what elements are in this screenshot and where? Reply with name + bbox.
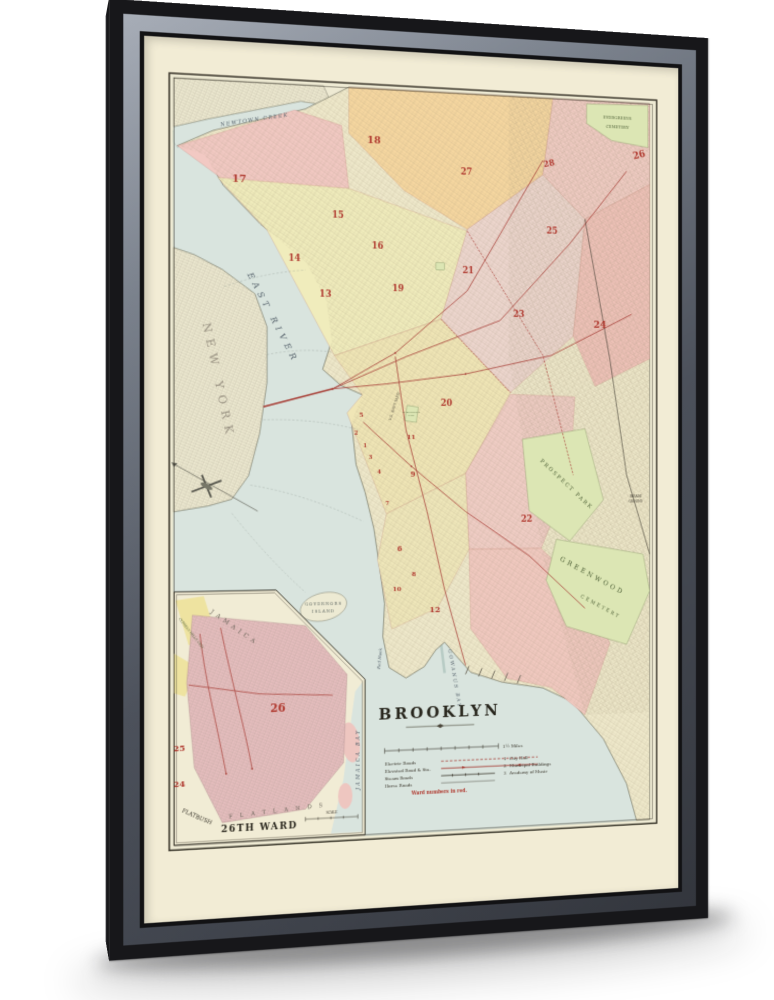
legend-key3-num: 3 (504, 770, 507, 775)
ward-18: 18 (367, 135, 381, 147)
inset-ward-25: 25 (173, 743, 185, 753)
ward-8: 8 (412, 571, 416, 578)
label-parade-ground-2: GROUND (629, 499, 643, 503)
legend-key2-num: 2 (504, 763, 507, 768)
ward-27: 27 (461, 166, 472, 177)
label-governors-island-2: ISLAND (312, 608, 335, 614)
framed-canvas: NEWTOWN CREEK EAST RIVER NEW YORK U.S. N… (109, 0, 708, 961)
scale-note: 1¼ Miles (503, 743, 523, 750)
ward-13: 13 (319, 288, 331, 299)
brooklyn-map: NEWTOWN CREEK EAST RIVER NEW YORK U.S. N… (166, 70, 660, 854)
float-gap: NEWTOWN CREEK EAST RIVER NEW YORK U.S. N… (140, 31, 682, 928)
label-governors-island-1: GOVERNORS (305, 600, 342, 606)
ward-7: 7 (385, 501, 389, 507)
ward-12: 12 (430, 605, 441, 615)
product-photo: NEWTOWN CREEK EAST RIVER NEW YORK U.S. N… (0, 0, 774, 1000)
ward-6: 6 (397, 545, 402, 554)
label-washington-park-2: PARK (408, 414, 415, 417)
ward-19: 19 (392, 282, 404, 293)
ward-21: 21 (462, 264, 473, 275)
ward-20: 20 (441, 398, 453, 409)
ward-11: 11 (407, 434, 416, 441)
ward-14: 14 (288, 252, 300, 263)
inset-label-jamaica-bay: JAMAICA BAY (355, 728, 361, 791)
ward-24: 24 (594, 319, 607, 331)
inset-ward-24: 24 (173, 779, 185, 789)
ward-23: 23 (513, 309, 525, 320)
ward-5: 5 (359, 411, 363, 418)
frame-inner-lip: NEWTOWN CREEK EAST RIVER NEW YORK U.S. N… (123, 14, 696, 946)
label-parade-ground-1: PARADE (630, 495, 642, 499)
ward-22: 22 (521, 513, 532, 524)
ward-1: 1 (363, 443, 367, 449)
ward-2: 2 (354, 431, 358, 437)
legend-key1-label: City Hall (510, 755, 529, 761)
ward-4: 4 (377, 469, 381, 475)
ward-17: 17 (232, 173, 246, 186)
ward-25: 25 (547, 225, 558, 236)
label-washington-park-1: WASHINGTON (402, 410, 420, 413)
frame-front: NEWTOWN CREEK EAST RIVER NEW YORK U.S. N… (109, 0, 708, 961)
ward-3: 3 (369, 455, 373, 461)
canvas-print: NEWTOWN CREEK EAST RIVER NEW YORK U.S. N… (144, 36, 678, 924)
ward-10: 10 (393, 585, 402, 593)
ward-15: 15 (332, 209, 344, 220)
inset-ward-26: 26 (270, 702, 285, 716)
ward-9: 9 (411, 471, 416, 479)
legend-key1-num: 1 (504, 756, 507, 761)
inset-scale-label: SCALE (326, 810, 338, 815)
ward-16: 16 (372, 240, 384, 251)
